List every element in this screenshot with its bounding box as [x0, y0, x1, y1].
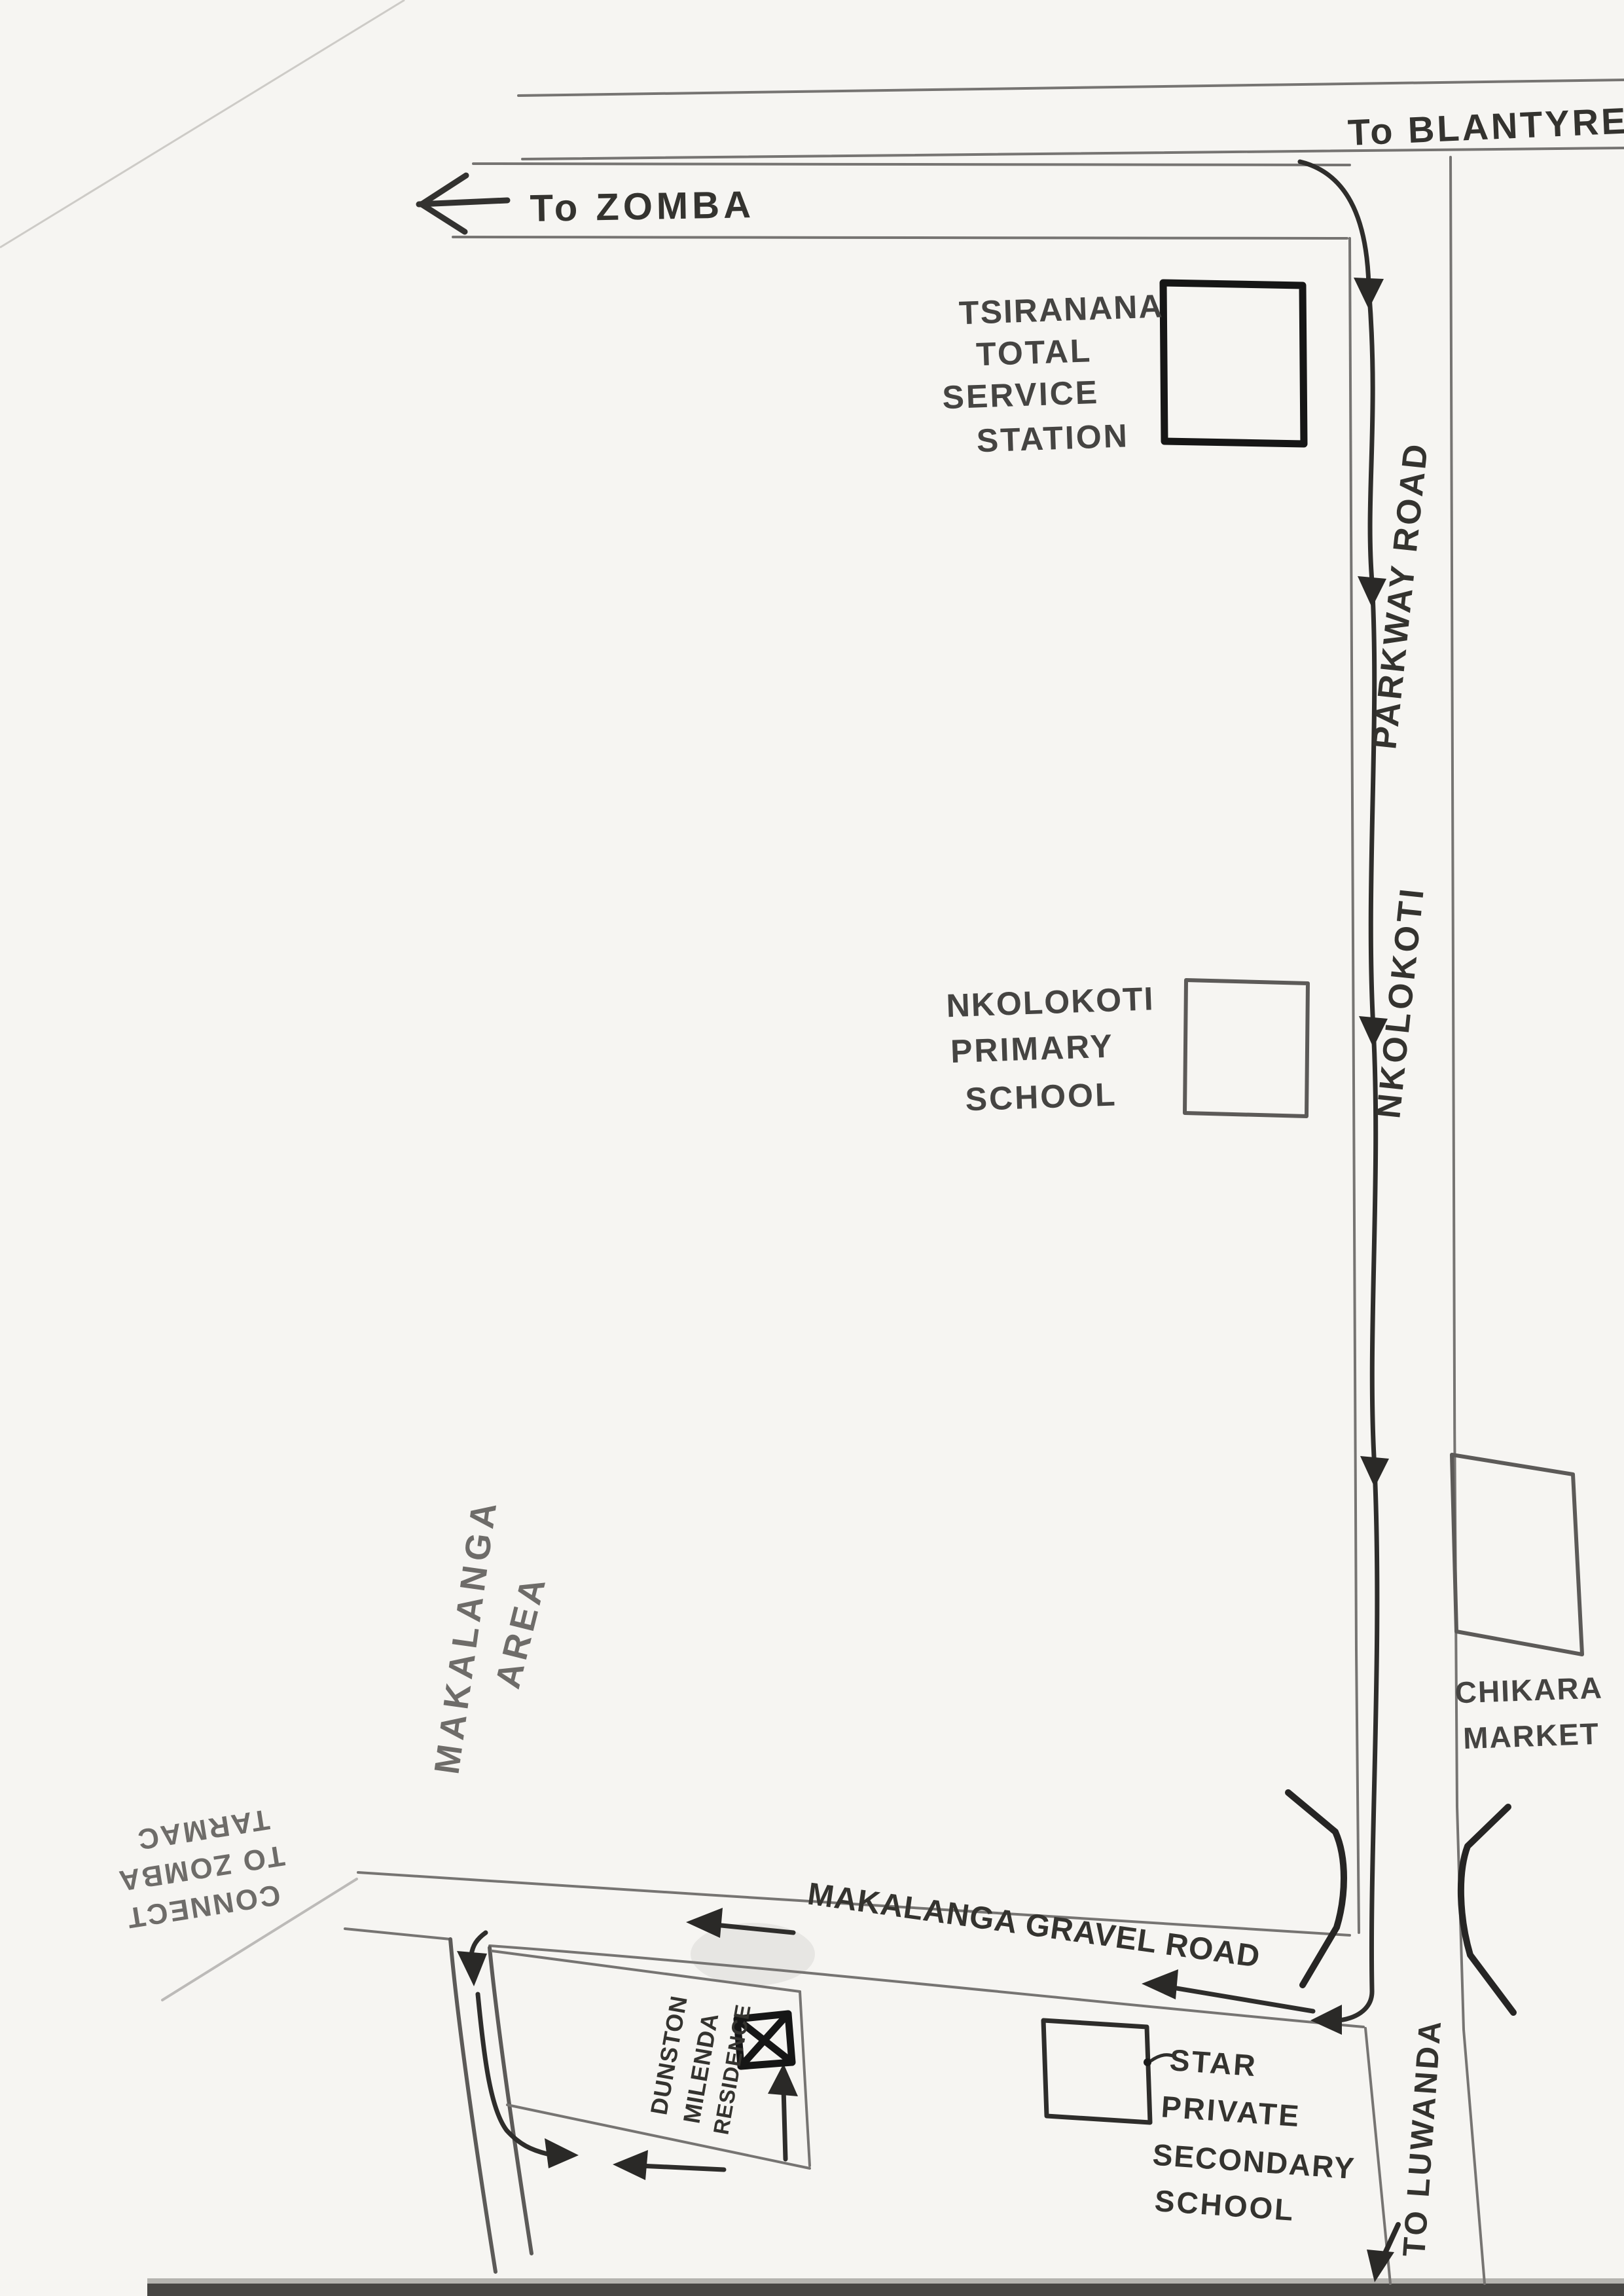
label-line: SERVICE — [942, 374, 1100, 416]
junction-flare-left — [1288, 1793, 1344, 1985]
label-line: STAR — [1168, 2043, 1258, 2083]
scan-bottom-shadow — [147, 2278, 1624, 2284]
label-service-station: TSIRANANA TOTAL SERVICE STATION — [939, 287, 1168, 460]
route-down-arrow-1 — [1354, 278, 1384, 309]
blantyre-road-upper-edge — [518, 80, 1624, 96]
route-left-arrow-gravel-west — [686, 1908, 723, 1938]
label-line: MARKET — [1462, 1717, 1600, 1755]
parkway-road-left-edge — [1350, 238, 1359, 1933]
label-market: CHIKARA MARKET — [1454, 1670, 1605, 1755]
route — [457, 162, 1389, 2180]
route-up-segment-to-residence — [784, 2088, 785, 2159]
label-residence: DUNSTON MILENDA RESIDENCE — [645, 1994, 755, 2137]
route-left-arrow-junction — [1310, 2005, 1342, 2035]
zomba-road-lower-edge — [453, 237, 1347, 238]
route-down-arrow-branch — [457, 1951, 487, 1986]
junction-flare-right — [1461, 1807, 1513, 2013]
label-primary-school: NKOLOKOTI PRIMARY SCHOOL — [946, 980, 1159, 1118]
buildings — [737, 283, 1582, 2123]
label-area-name: MAKALANGA — [427, 1495, 505, 1777]
route-hook-from-blantyre-road — [1300, 162, 1369, 285]
primary-school-building — [1185, 980, 1308, 1116]
label-connect-note: CONNECT TO ZOMBA TARMAC — [109, 1802, 293, 1935]
label-line: SECONDARY — [1151, 2138, 1356, 2186]
label-line: PRIVATE — [1160, 2089, 1302, 2133]
gravel-road-lower-edge-left — [345, 1929, 450, 1939]
label-line: CHIKARA — [1454, 1670, 1604, 1709]
label-line: PRIMARY — [950, 1027, 1115, 1070]
zomba-arrow — [419, 175, 507, 232]
label-to-zomba: To ZOMBA — [530, 183, 755, 230]
luwanda-arrow — [1367, 2225, 1398, 2282]
route-turn-down-branch — [471, 1933, 486, 1955]
label-line: SCHOOL — [1153, 2183, 1296, 2227]
route-left-arrow-gravel-east — [1142, 1969, 1178, 1999]
label-to-luwanda: TO LUWANDA — [1397, 2018, 1448, 2258]
label-nkolokoti-road: NKOLOKOTI — [1369, 884, 1432, 1120]
branch-road-left-edge — [450, 1939, 496, 2272]
service-station-building — [1163, 283, 1304, 444]
label-secondary-school: STAR PRIVATE SECONDARY SCHOOL — [1148, 2042, 1363, 2231]
scan-artifacts — [0, 0, 1624, 2296]
label-line: TOTAL — [975, 332, 1092, 373]
residence-plot-right-edge — [800, 1992, 810, 2166]
label-line: NKOLOKOTI — [946, 980, 1155, 1024]
label-area-word: AREA — [488, 1571, 554, 1692]
label-line: SCHOOL — [965, 1076, 1118, 1118]
route-up-arrow-to-residence — [768, 2064, 798, 2096]
market-building — [1452, 1455, 1582, 1654]
scan-crease-line — [0, 0, 405, 247]
zomba-road-upper-edge — [473, 164, 1350, 165]
route-left-arrow-plot-bottom — [613, 2150, 648, 2180]
label-line: TSIRANANA — [958, 287, 1164, 331]
left-arrow-shaft — [419, 200, 507, 204]
secondary-school-building — [1043, 2020, 1150, 2123]
scan-bottom-edge — [147, 2284, 1624, 2296]
blantyre-road-lower-edge — [522, 148, 1624, 159]
scanned-map-page: To BLANTYRE To ZOMBA TSIRANANA TOTAL SER… — [0, 0, 1624, 2296]
route-down-arrow-4 — [1360, 1456, 1389, 1487]
label-line: STATION — [976, 417, 1130, 459]
junction-flares — [1288, 1793, 1513, 2013]
labels: To BLANTYRE To ZOMBA TSIRANANA TOTAL SER… — [109, 100, 1624, 2257]
roads — [162, 80, 1624, 2284]
map-canvas: To BLANTYRE To ZOMBA TSIRANANA TOTAL SER… — [0, 0, 1624, 2296]
label-to-blantyre: To BLANTYRE — [1347, 100, 1624, 153]
route-gravel-segment-east — [1157, 1985, 1313, 2011]
route-right-arrow-plot-bottom — [545, 2138, 579, 2168]
